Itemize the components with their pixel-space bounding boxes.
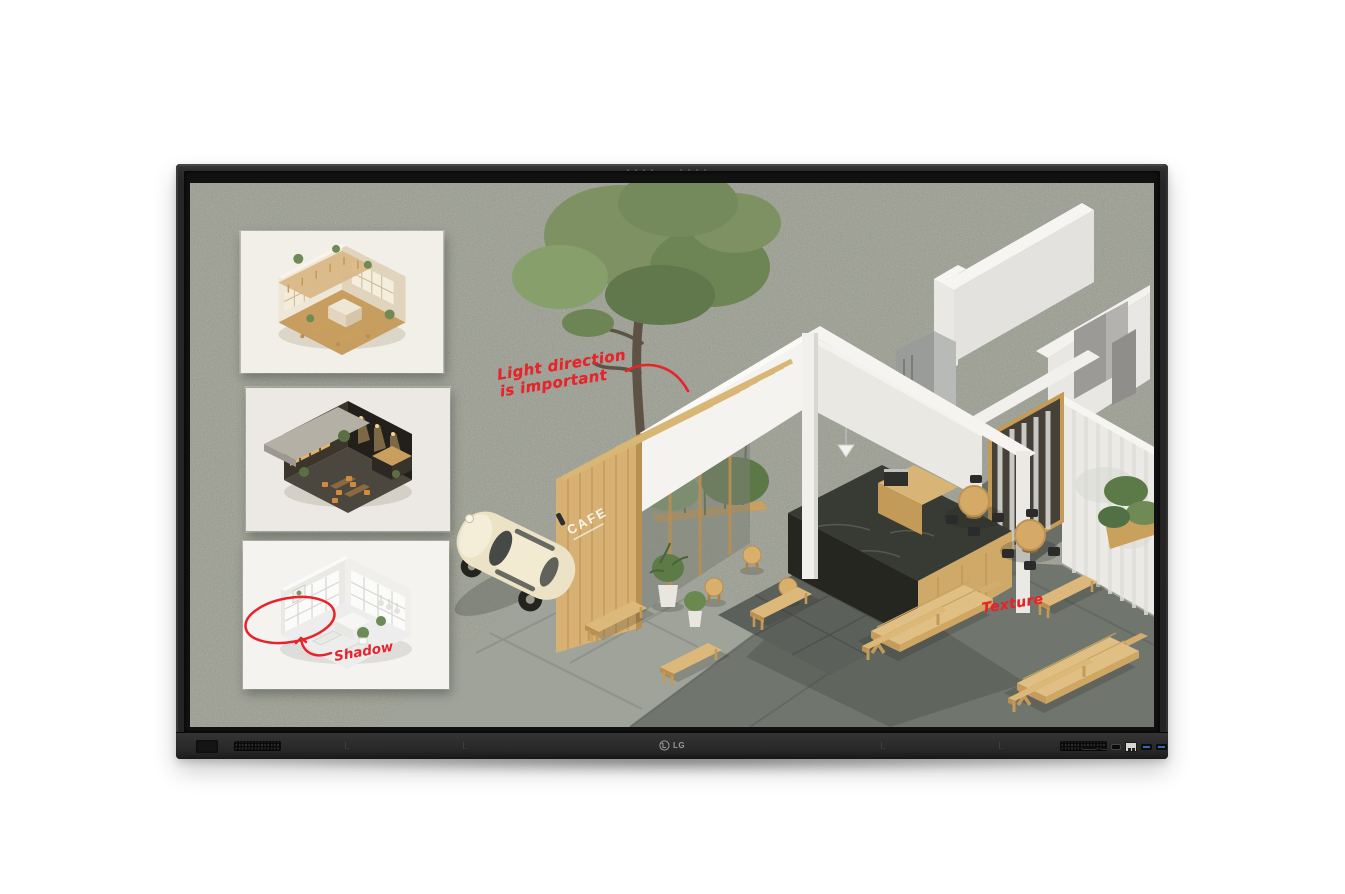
- thumbnail-dark-cafe[interactable]: [246, 387, 450, 532]
- lg-interactive-display: CAFE: [176, 164, 1168, 759]
- speaker-grille-left: [234, 741, 281, 751]
- whiteboard-canvas[interactable]: CAFE: [190, 183, 1154, 727]
- drop-shadow: [182, 757, 1162, 775]
- bezel-mark: [345, 742, 350, 749]
- bezel-mark: [881, 742, 886, 749]
- lg-wordmark: LG: [673, 741, 685, 750]
- io-ports: [1082, 742, 1167, 752]
- usb-a-port: [1125, 742, 1137, 752]
- product-photo: CAFE: [0, 0, 1345, 894]
- ir-sensor: [196, 740, 218, 753]
- bezel-mark: [999, 742, 1004, 749]
- usb3-port: [1156, 744, 1167, 750]
- card-slot: [1082, 746, 1097, 749]
- speaker-bar: LG: [176, 732, 1168, 759]
- annotation-arrow: [618, 351, 698, 403]
- lg-symbol-icon: [659, 740, 670, 751]
- thumbnail-warm-cafe[interactable]: [240, 231, 444, 373]
- bezel-mark: [463, 742, 468, 749]
- thumbnail-bright-cafe[interactable]: Shadow: [243, 541, 449, 689]
- usb3-port: [1141, 744, 1152, 750]
- card-slot-small: [1101, 746, 1107, 749]
- lg-logo: LG: [659, 740, 685, 751]
- usb-c-port: [1111, 744, 1121, 750]
